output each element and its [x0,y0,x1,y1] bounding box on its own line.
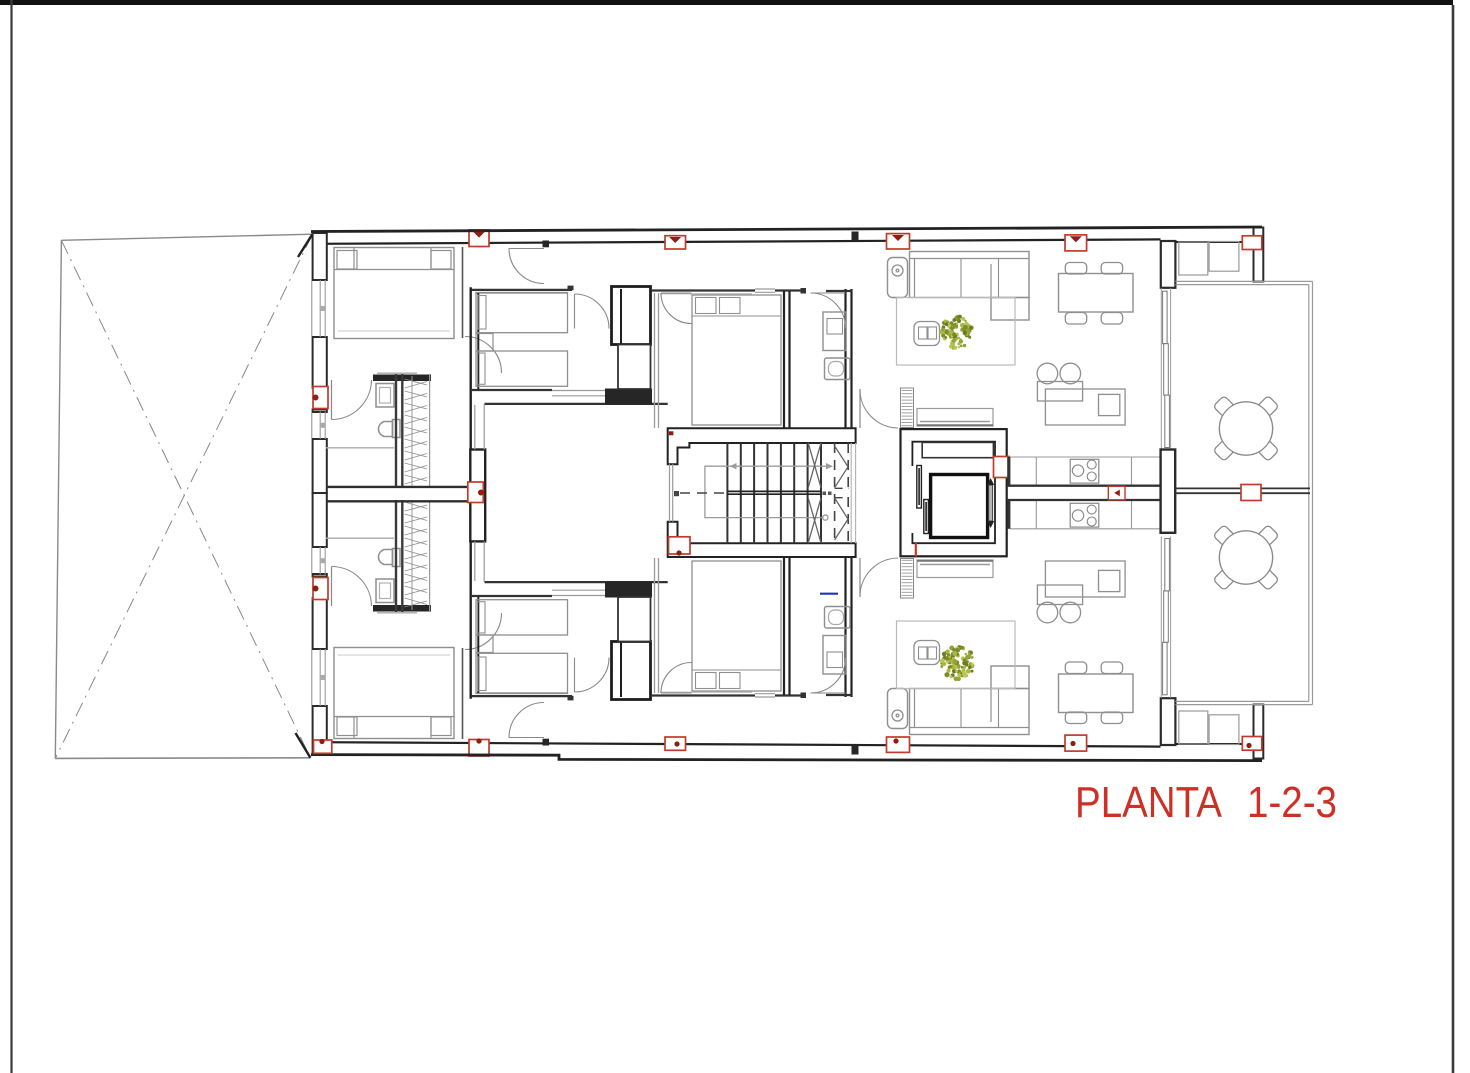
svg-text:1-2-3: 1-2-3 [1247,778,1337,827]
svg-text:PLANTA: PLANTA [1075,778,1223,827]
